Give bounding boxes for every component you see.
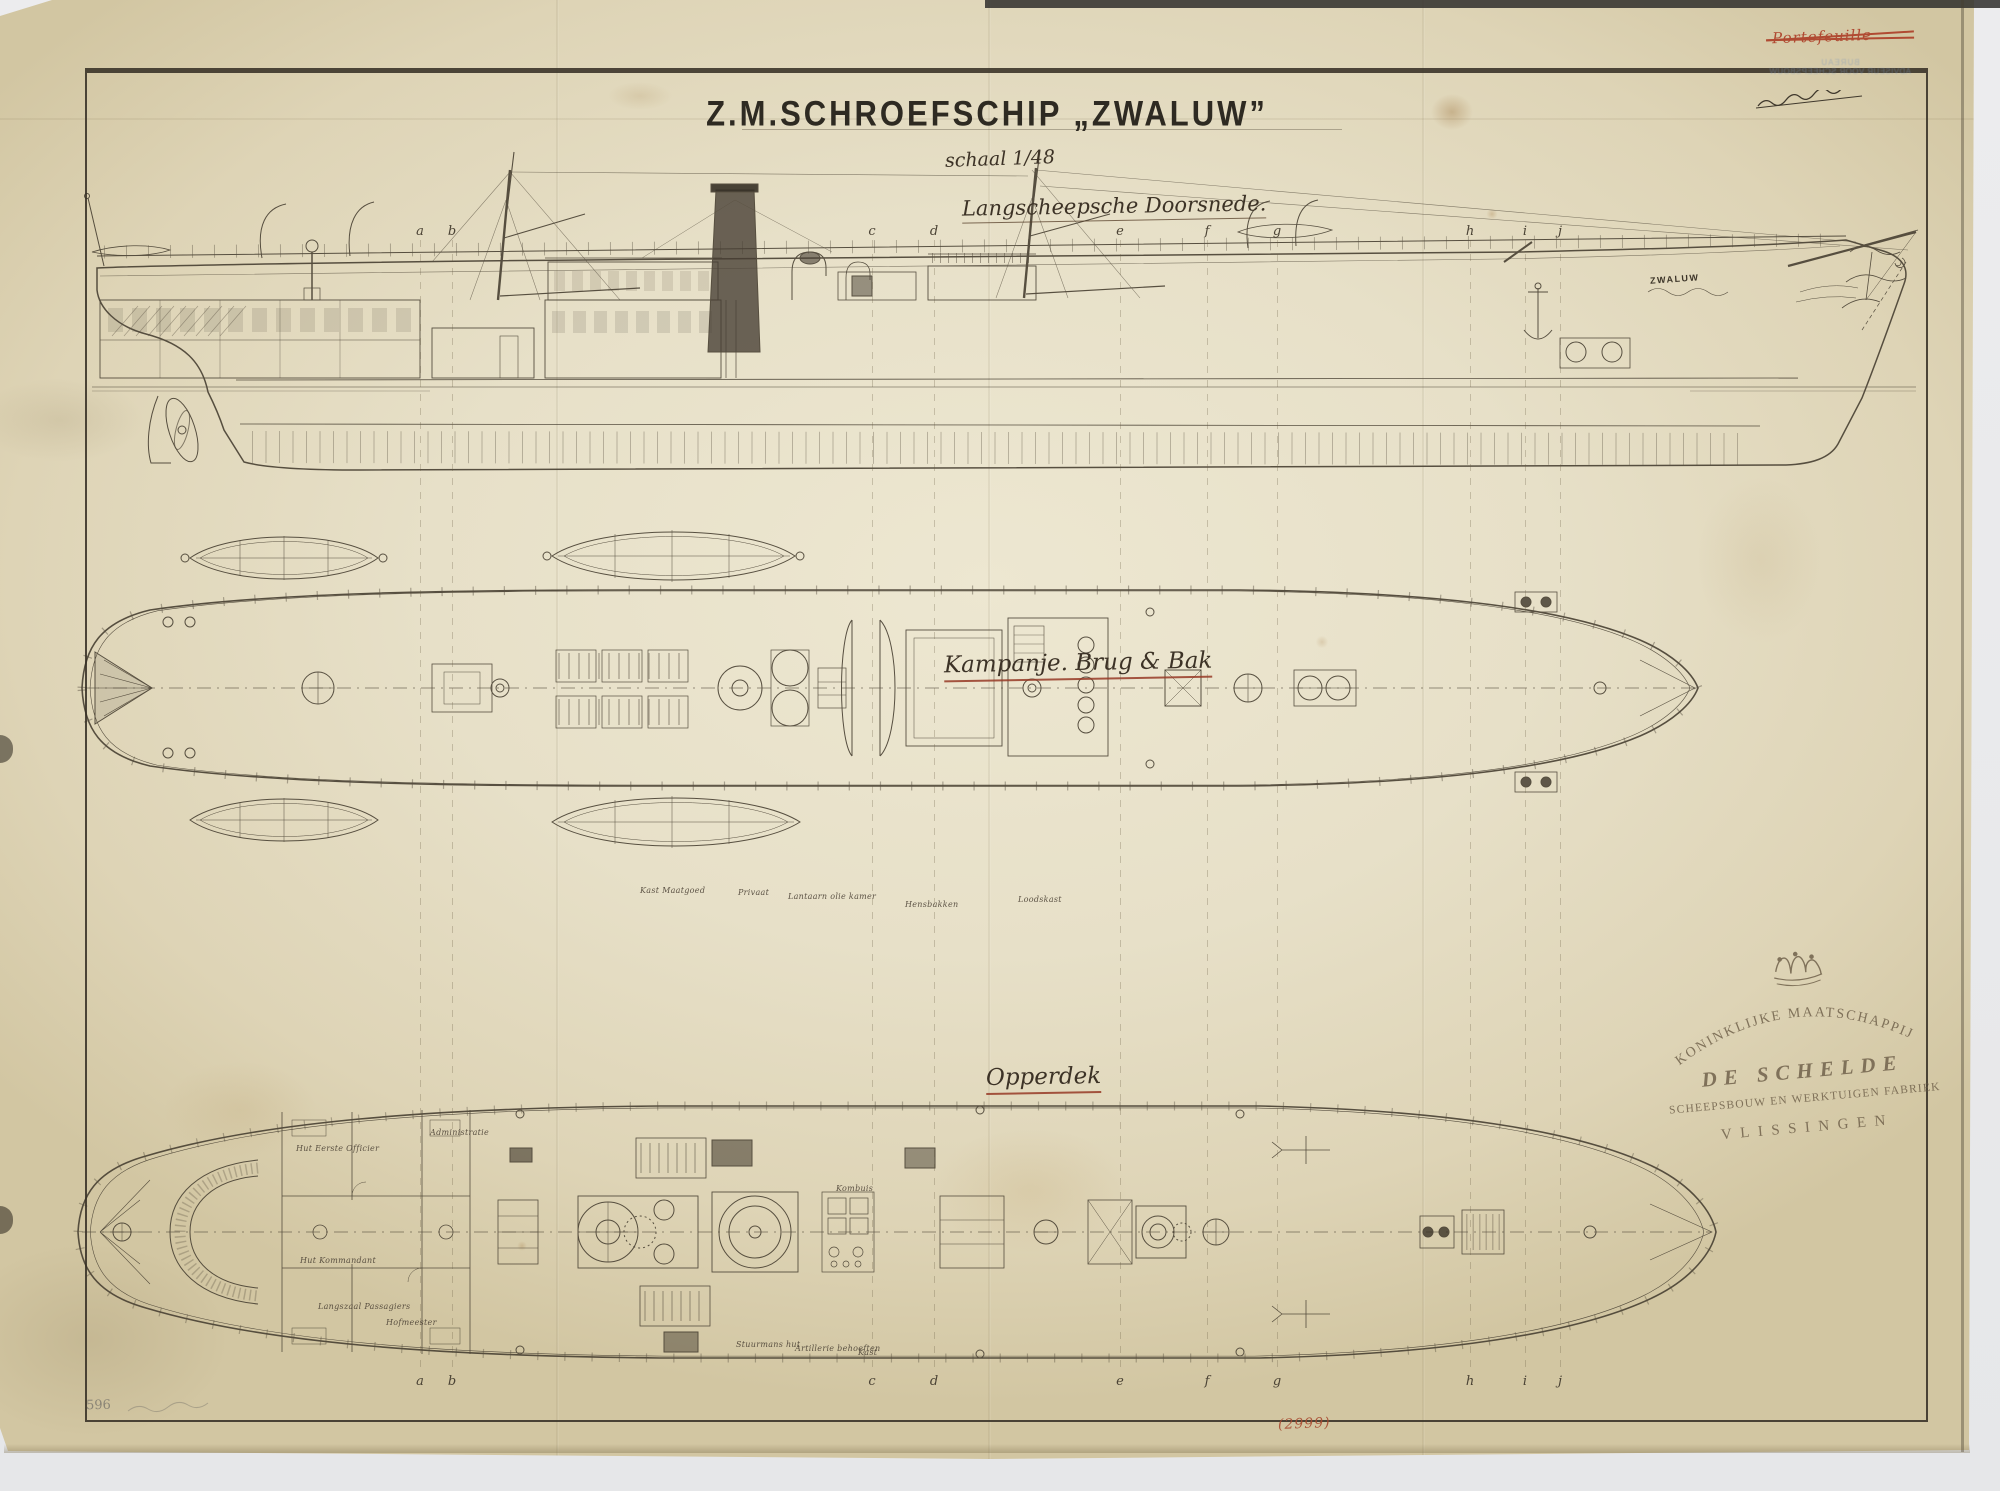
room-label-8: Lantaarn olie kamer — [788, 892, 876, 901]
ships-boat — [181, 536, 387, 580]
stern-davit — [349, 202, 374, 256]
scanned-blueprint-canvas: Z.M.SCHROEFSCHIP „ZWALUW” schaal 1/48 La… — [0, 0, 2000, 1491]
ships-boat — [190, 798, 378, 842]
station-letter-top-a: a — [416, 224, 424, 239]
davit-boat — [1238, 224, 1332, 238]
plan-label-opperdek: Opperdek — [986, 1063, 1102, 1095]
station-letter-bottom-f: f — [1205, 1374, 1210, 1389]
room-label-12: Stuurmans hut — [736, 1340, 800, 1349]
pencil-inventory-number: 596 — [86, 1398, 111, 1413]
station-letter-bottom-e: e — [1116, 1374, 1124, 1389]
room-label-1: Hut Eerste Officier — [296, 1144, 379, 1153]
blue-stamp-line-1: BUREAU — [1752, 58, 1928, 67]
anchor — [1524, 283, 1552, 339]
funnel — [642, 184, 832, 352]
station-letter-top-c: c — [868, 224, 875, 239]
room-label-6: Kast Maatgoed — [640, 886, 705, 895]
station-letter-bottom-c: c — [868, 1374, 875, 1389]
propeller — [159, 395, 204, 466]
ships-boat — [552, 796, 800, 848]
ship-drawing — [0, 0, 2000, 1491]
paper-edge-shadow — [1961, 0, 1964, 1452]
room-label-7: Privaat — [738, 888, 769, 897]
blue-stamp-line-2: ADVISEUR VOOR SCHEEPSBOUW — [1752, 67, 1928, 76]
company-stamp: KONINKLIJKE MAATSCHAPPIJ DE SCHELDE SCHE… — [1641, 925, 1958, 1160]
station-letter-bottom-h: h — [1466, 1374, 1474, 1389]
stern-grating — [95, 652, 152, 724]
station-letter-bottom-b: b — [448, 1374, 456, 1389]
station-letter-top-f: f — [1205, 224, 1210, 239]
bollard-plate — [1515, 772, 1557, 792]
stamp-line-2: DE SCHELDE — [1700, 1050, 1905, 1092]
room-label-9: Hensbakken — [905, 900, 958, 909]
stamp-line-4: VLISSINGEN — [1720, 1112, 1894, 1143]
station-letter-bottom-i: i — [1523, 1374, 1527, 1389]
station-letter-top-h: h — [1466, 224, 1474, 239]
room-label-5: Hofmeester — [386, 1318, 437, 1327]
room-label-2: Administratie — [430, 1128, 489, 1137]
station-letter-bottom-a: a — [416, 1374, 424, 1389]
stern-davit — [260, 204, 286, 258]
hull-profile — [97, 240, 1906, 470]
paper-edge-shadow — [4, 1444, 1970, 1453]
flagstaff — [88, 198, 104, 266]
red-registry-number: (2999) — [1278, 1415, 1331, 1433]
scan-edge-shadow — [985, 0, 2000, 8]
plan-label-kampanje-brug-bak: Kampanje. Brug & Bak — [944, 648, 1213, 683]
room-label-4: Langszaal Passagiers — [318, 1302, 410, 1311]
station-letter-top-e: e — [1116, 224, 1124, 239]
station-letter-top-d: d — [930, 224, 938, 239]
station-letter-top-b: b — [448, 224, 456, 239]
crossed-out-signature-scribble — [1756, 90, 1868, 114]
stern-boat — [92, 246, 170, 256]
windlass — [1294, 670, 1356, 706]
room-label-3: Hut Kommandant — [300, 1256, 376, 1265]
station-letter-bottom-j: j — [1558, 1374, 1562, 1389]
room-label-11: Kombuis — [836, 1184, 873, 1193]
pencil-scribble — [126, 1398, 236, 1418]
station-letter-top-j: j — [1558, 224, 1562, 239]
section-label: Langscheepsche Doorsnede. — [962, 191, 1267, 223]
station-letter-bottom-g: g — [1273, 1374, 1281, 1389]
station-letter-top-g: g — [1273, 224, 1281, 239]
midships-deck-plan — [82, 530, 1698, 848]
crown-icon — [1772, 950, 1823, 987]
main-mast — [1024, 150, 1165, 298]
faint-blue-office-stamp: BUREAU ADVISEUR VOOR SCHEEPSBOUW — [1752, 58, 1928, 76]
skylight-grid — [556, 650, 688, 728]
station-letter-bottom-d: d — [930, 1374, 938, 1389]
rudder — [148, 396, 171, 463]
room-label-10: Loodskast — [1018, 895, 1062, 904]
ships-boat — [543, 530, 804, 582]
room-label-14: Kast — [858, 1348, 877, 1357]
station-letter-top-i: i — [1523, 224, 1527, 239]
